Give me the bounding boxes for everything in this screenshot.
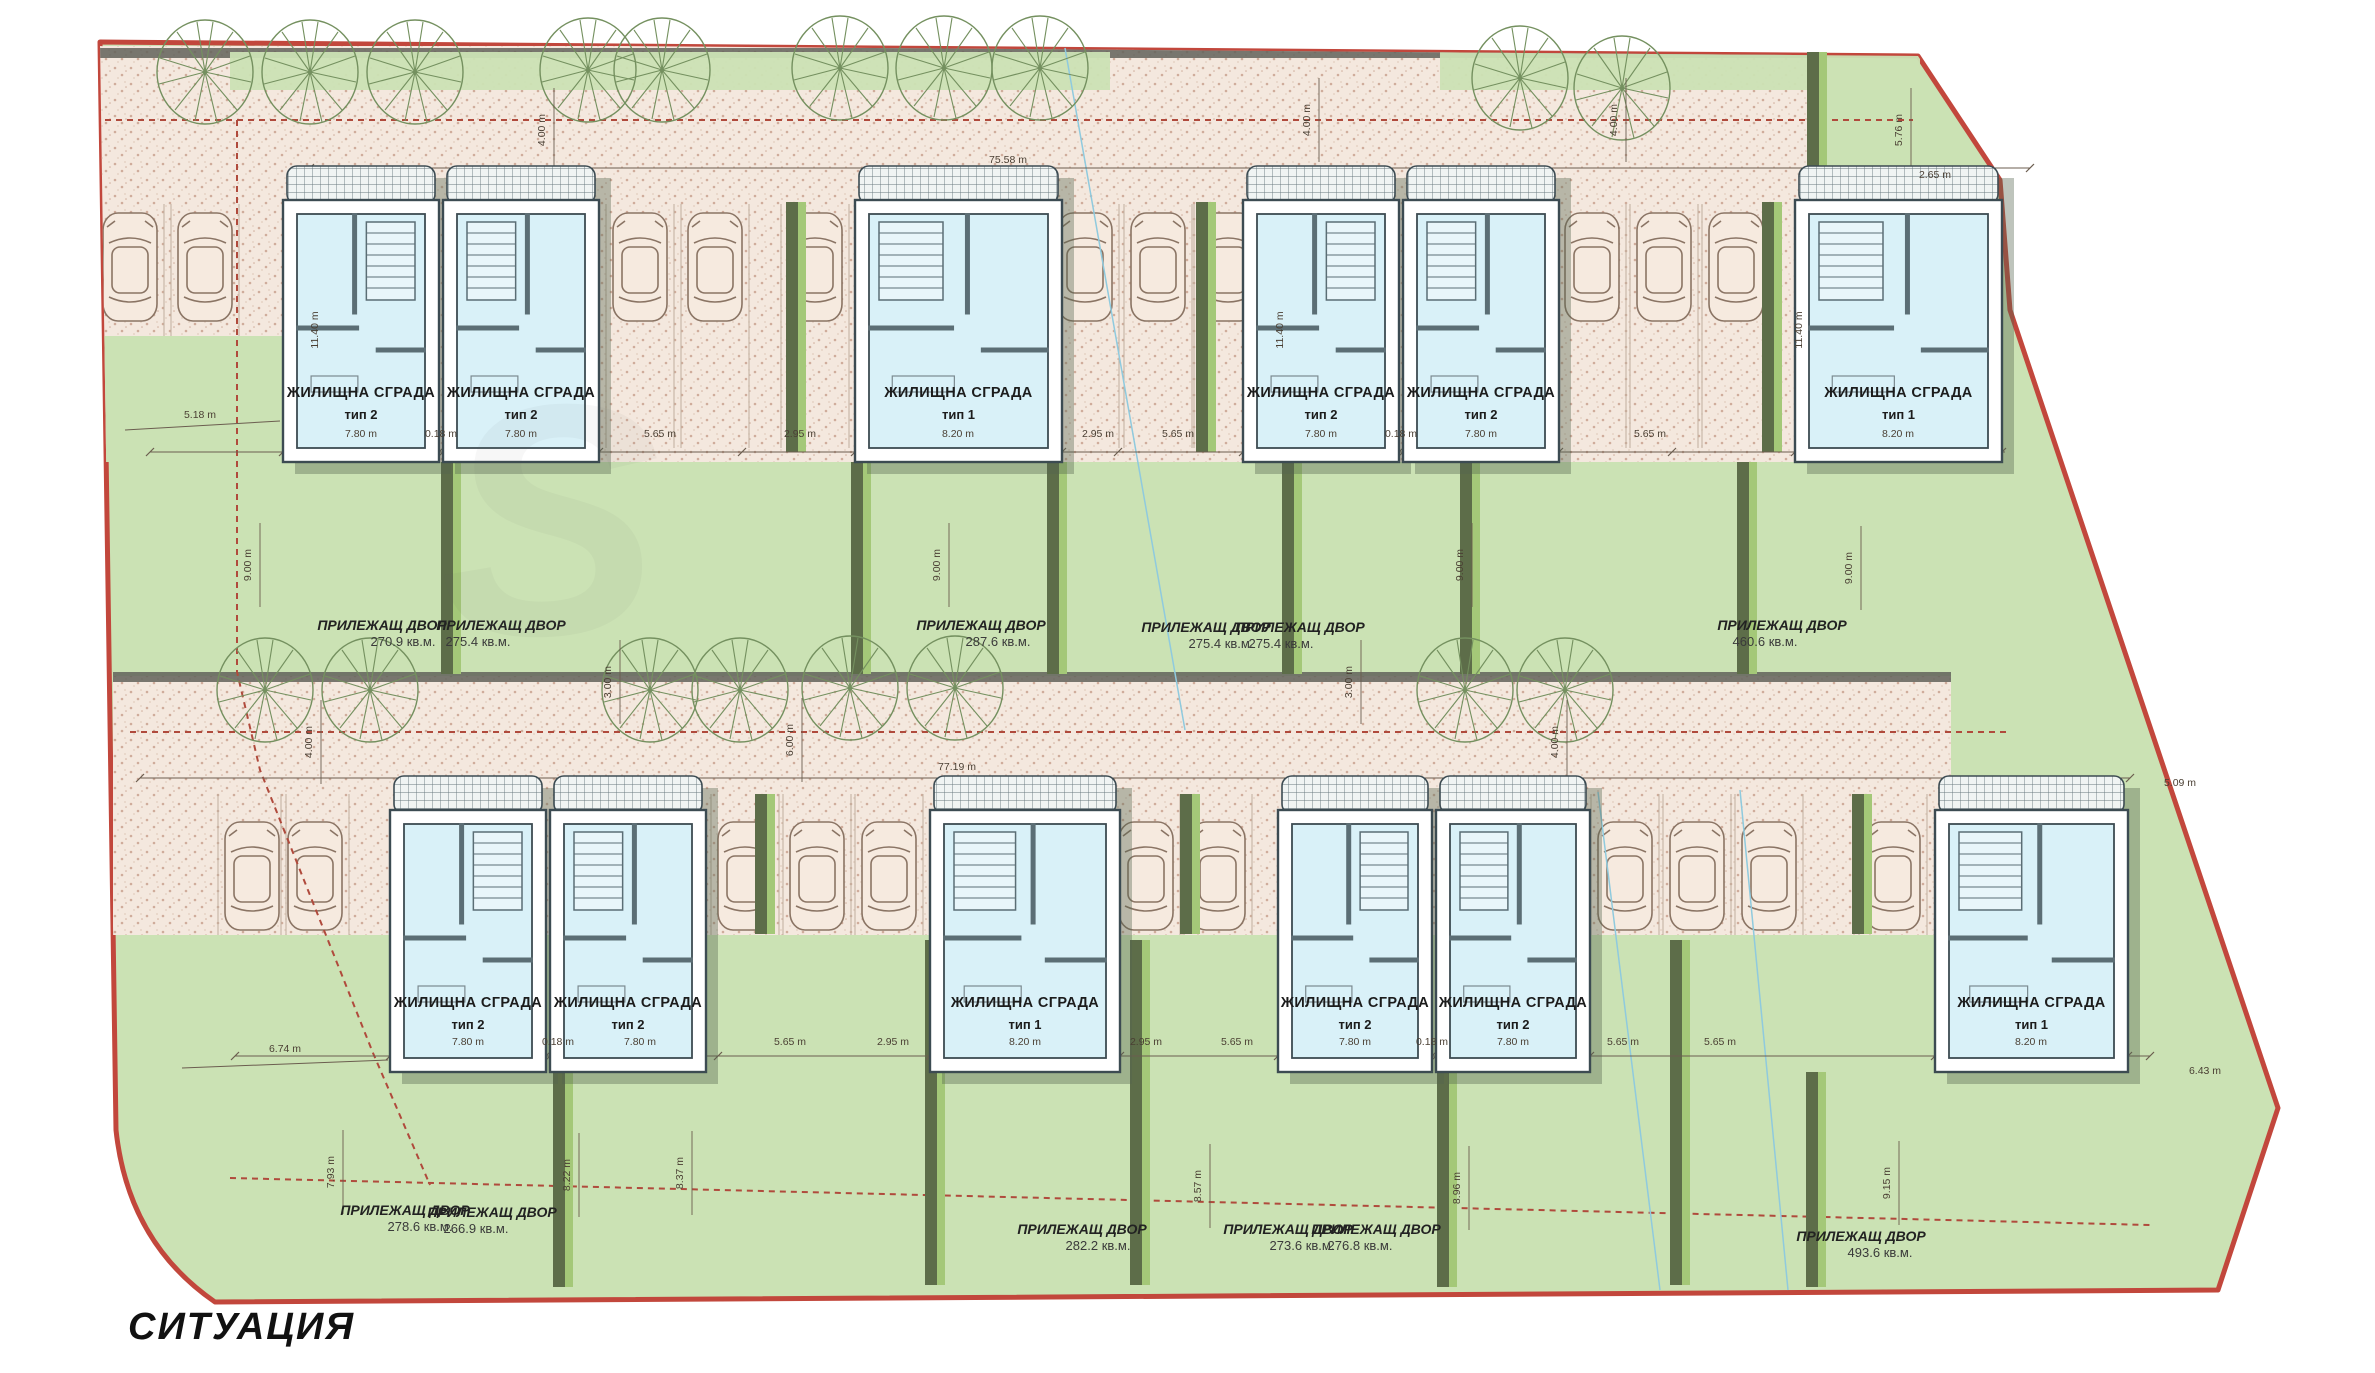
- dimension-label: 4.00 m: [536, 114, 548, 146]
- building-name-label: ЖИЛИЩНА СГРАДА: [1956, 995, 2105, 1011]
- dimension-label: 8.22 m: [561, 1159, 573, 1191]
- terrace: [447, 166, 595, 204]
- yard-name-label: ПРИЛЕЖАЩ ДВОР: [916, 617, 1046, 633]
- yard-area-label: 282.2 кв.м.: [1066, 1238, 1131, 1253]
- building-type-label: тип 1: [942, 407, 975, 422]
- dimension-label: 8.37 m: [674, 1157, 686, 1189]
- fence: [1670, 940, 1682, 1285]
- yard-name-label: ПРИЛЕЖАЩ ДВОР: [436, 617, 566, 633]
- building-name-label: ЖИЛИЩНА СГРАДА: [1438, 995, 1587, 1011]
- dimension-label: 7.80 m: [345, 428, 377, 440]
- dimension-label: 5.65 m: [774, 1036, 806, 1048]
- dimension-label: 0.18 m: [1416, 1036, 1448, 1048]
- dimension-label: 5.65 m: [1634, 428, 1666, 440]
- dimension-label: 8.96 m: [1451, 1172, 1463, 1204]
- building-name-label: ЖИЛИЩНА СГРАДА: [553, 995, 702, 1011]
- car-icon: [613, 213, 667, 321]
- building-name-label: ЖИЛИЩНА СГРАДА: [1406, 385, 1555, 401]
- terrace: [934, 776, 1116, 814]
- dimension-label: 7.80 m: [452, 1036, 484, 1048]
- dimension-label: 3.00 m: [1343, 666, 1355, 698]
- dimension-label: 6.43 m: [2189, 1065, 2221, 1077]
- yard-name-label: ПРИЛЕЖАЩ ДВОР: [1717, 617, 1847, 633]
- car-icon: [1866, 822, 1920, 930]
- fence: [863, 462, 871, 674]
- dimension-label: 4.00 m: [1608, 104, 1620, 136]
- building-name-label: ЖИЛИЩНА СГРАДА: [446, 385, 595, 401]
- fence: [1682, 940, 1690, 1285]
- car-icon: [103, 213, 157, 321]
- fence: [1864, 794, 1872, 934]
- yard-name-label: ПРИЛЕЖАЩ ДВОР: [317, 617, 447, 633]
- fence: [767, 794, 775, 934]
- building-name-label: ЖИЛИЩНА СГРАДА: [1246, 385, 1395, 401]
- fence: [755, 794, 767, 934]
- car-icon: [1670, 822, 1724, 930]
- dimension-label: 9.00 m: [1454, 549, 1466, 581]
- car-icon: [1565, 213, 1619, 321]
- building-type-label: тип 1: [1882, 407, 1915, 422]
- car-icon: [288, 822, 342, 930]
- site-plan-drawing: ЖИЛИЩНА СГРАДАтип 2ЖИЛИЩНА СГРАДАтип 2ЖИ…: [0, 0, 2375, 1373]
- dimension-label: 7.80 m: [1465, 428, 1497, 440]
- terrace: [1407, 166, 1555, 204]
- dimension-label: 5.65 m: [1607, 1036, 1639, 1048]
- dimension-label: 75.58 m: [989, 154, 1027, 166]
- car-icon: [1598, 822, 1652, 930]
- dimension-label: 2.95 m: [1130, 1036, 1162, 1048]
- yard-name-label: ПРИЛЕЖАЩ ДВОР: [1235, 619, 1365, 635]
- dimension-label: 2.95 m: [877, 1036, 909, 1048]
- fence: [1818, 1072, 1826, 1287]
- fence: [1437, 1072, 1449, 1287]
- fence: [1047, 462, 1059, 674]
- terrace: [859, 166, 1058, 204]
- terrace: [1799, 166, 1998, 204]
- dimension-label: 5.65 m: [1221, 1036, 1253, 1048]
- dimension-label: 6.00 m: [784, 724, 796, 756]
- dimension-label: 2.65 m: [1919, 169, 1951, 181]
- car-icon: [862, 822, 916, 930]
- building-name-label: ЖИЛИЩНА СГРАДА: [393, 995, 542, 1011]
- dimension-label: 5.65 m: [1162, 428, 1194, 440]
- building-type-label: тип 2: [344, 407, 377, 422]
- dimension-label: 8.20 m: [1009, 1036, 1041, 1048]
- dimension-label: 7.80 m: [1497, 1036, 1529, 1048]
- plan-title: СИТУАЦИЯ: [128, 1306, 355, 1349]
- dimension-label: 11.40 m: [1274, 311, 1286, 348]
- dimension-label: 7.80 m: [624, 1036, 656, 1048]
- dimension-label: 0.18 m: [425, 428, 457, 440]
- dimension-label: 8.20 m: [1882, 428, 1914, 440]
- dimension-label: 77.19 m: [938, 761, 976, 773]
- terrace: [1282, 776, 1428, 814]
- yard-area-label: 276.8 кв.м.: [1328, 1238, 1393, 1253]
- dimension-label: 7.80 m: [1305, 428, 1337, 440]
- car-icon: [790, 822, 844, 930]
- dimension-label: 11.40 m: [1793, 311, 1805, 348]
- building-type-label: тип 2: [1496, 1017, 1529, 1032]
- fence: [1762, 202, 1774, 452]
- yard-area-label: 266.9 кв.м.: [444, 1221, 509, 1236]
- dimension-label: 2.95 m: [1082, 428, 1114, 440]
- car-icon: [178, 213, 232, 321]
- building-type-label: тип 1: [1008, 1017, 1041, 1032]
- yard-name-label: ПРИЛЕЖАЩ ДВОР: [427, 1204, 557, 1220]
- curb: [113, 672, 1951, 682]
- terrace: [1247, 166, 1395, 204]
- car-icon: [225, 822, 279, 930]
- dimension-label: 9.15 m: [1881, 1167, 1893, 1199]
- dimension-label: 5.65 m: [1704, 1036, 1736, 1048]
- building-name-label: ЖИЛИЩНА СГРАДА: [883, 385, 1032, 401]
- car-icon: [1709, 213, 1763, 321]
- yard-area-label: 270.9 кв.м.: [371, 634, 436, 649]
- fence: [1196, 202, 1208, 452]
- yard-area-label: 275.4 кв.м.: [1249, 636, 1314, 651]
- dimension-label: 7.93 m: [325, 1156, 337, 1188]
- dimension-label: 5.65 m: [644, 428, 676, 440]
- dimension-label: 5.09 m: [2164, 777, 2196, 789]
- dimension-label: 5.76 m: [1893, 114, 1905, 146]
- fence: [1192, 794, 1200, 934]
- fence: [1180, 794, 1192, 934]
- building-name-label: ЖИЛИЩНА СГРАДА: [950, 995, 1099, 1011]
- building-type-label: тип 2: [1304, 407, 1337, 422]
- car-icon: [688, 213, 742, 321]
- terrace: [554, 776, 702, 814]
- yard-name-label: ПРИЛЕЖАЩ ДВОР: [1796, 1228, 1926, 1244]
- building-type-label: тип 1: [2015, 1017, 2048, 1032]
- building-name-label: ЖИЛИЩНА СГРАДА: [1823, 385, 1972, 401]
- dimension-label: 8.20 m: [942, 428, 974, 440]
- fence: [1852, 794, 1864, 934]
- yard-area-label: 460.6 кв.м.: [1733, 634, 1798, 649]
- dimension-label: 5.18 m: [184, 409, 216, 421]
- site-plan-page: ЖИЛИЩНА СГРАДАтип 2ЖИЛИЩНА СГРАДАтип 2ЖИ…: [0, 0, 2375, 1373]
- building-type-label: тип 2: [611, 1017, 644, 1032]
- building-type-label: тип 2: [451, 1017, 484, 1032]
- building-name-label: ЖИЛИЩНА СГРАДА: [1280, 995, 1429, 1011]
- terrace: [1939, 776, 2124, 814]
- fence: [1208, 202, 1216, 452]
- yard-area-label: 287.6 кв.м.: [966, 634, 1031, 649]
- car-icon: [1637, 213, 1691, 321]
- dimension-label: 8.57 m: [1192, 1170, 1204, 1202]
- dimension-label: 4.00 m: [1301, 104, 1313, 136]
- building-type-label: тип 2: [1464, 407, 1497, 422]
- yard-area-label: 493.6 кв.м.: [1848, 1245, 1913, 1260]
- fence: [786, 202, 798, 452]
- fence: [1806, 1072, 1818, 1287]
- dimension-label: 3.00 m: [602, 666, 614, 698]
- fence: [1774, 202, 1782, 452]
- yard-area-label: 275.4 кв.м.: [446, 634, 511, 649]
- yard-area-label: 275.4 кв.м.: [1189, 636, 1254, 651]
- terrace: [287, 166, 435, 204]
- car-icon: [1742, 822, 1796, 930]
- building-type-label: тип 2: [504, 407, 537, 422]
- dimension-label: 4.00 m: [303, 726, 315, 758]
- dimension-label: 0.18 m: [1385, 428, 1417, 440]
- fence: [798, 202, 806, 452]
- dimension-label: 7.80 m: [1339, 1036, 1371, 1048]
- dimension-label: 4.00 m: [1549, 726, 1561, 758]
- dimension-label: 2.95 m: [784, 428, 816, 440]
- yard-name-label: ПРИЛЕЖАЩ ДВОР: [1311, 1221, 1441, 1237]
- yard-area-label: 273.6 кв.м.: [1270, 1238, 1335, 1253]
- yard-name-label: ПРИЛЕЖАЩ ДВОР: [1017, 1221, 1147, 1237]
- dimension-label: 11.40 m: [309, 311, 321, 348]
- building-type-label: тип 2: [1338, 1017, 1371, 1032]
- verge-strip: [1440, 52, 1920, 90]
- dimension-label: 9.00 m: [242, 549, 254, 581]
- car-icon: [1131, 213, 1185, 321]
- dimension-label: 0.18 m: [542, 1036, 574, 1048]
- dimension-label: 9.00 m: [1843, 552, 1855, 584]
- yard-patch: [100, 336, 285, 462]
- dimension-label: 9.00 m: [931, 549, 943, 581]
- terrace: [1440, 776, 1586, 814]
- dimension-label: 8.20 m: [2015, 1036, 2047, 1048]
- dimension-label: 7.80 m: [505, 428, 537, 440]
- terrace: [394, 776, 542, 814]
- building-name-label: ЖИЛИЩНА СГРАДА: [286, 385, 435, 401]
- dimension-label: 6.74 m: [269, 1043, 301, 1055]
- fence: [1059, 462, 1067, 674]
